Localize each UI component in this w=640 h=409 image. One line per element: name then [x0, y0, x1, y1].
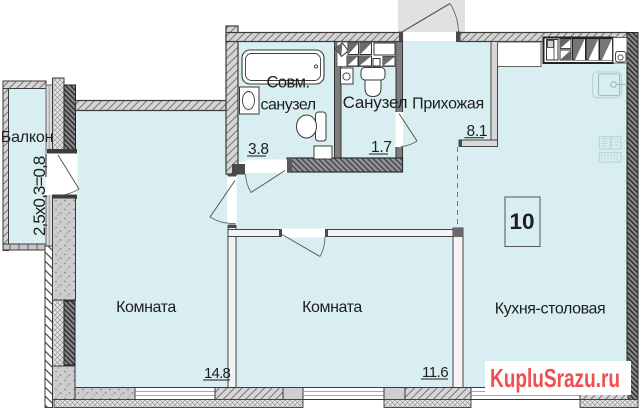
svg-text:Комната: Комната — [116, 299, 176, 316]
svg-text:KupluSrazu.ru: KupluSrazu.ru — [490, 363, 620, 393]
svg-text:Прихожая: Прихожая — [412, 96, 484, 113]
svg-text:11.6: 11.6 — [422, 364, 448, 381]
svg-text:Совм.: Совм. — [266, 74, 309, 92]
svg-text:10: 10 — [509, 209, 534, 234]
svg-text:14.8: 14.8 — [204, 365, 230, 382]
svg-text:Кухня-столовая: Кухня-столовая — [495, 301, 606, 318]
svg-text:Комната: Комната — [302, 299, 362, 316]
svg-text:Балкон: Балкон — [1, 129, 53, 146]
svg-text:санузел: санузел — [260, 97, 315, 114]
svg-text:Санузел: Санузел — [343, 93, 408, 112]
svg-text:1.7: 1.7 — [371, 139, 392, 156]
svg-text:3.8: 3.8 — [248, 141, 269, 158]
